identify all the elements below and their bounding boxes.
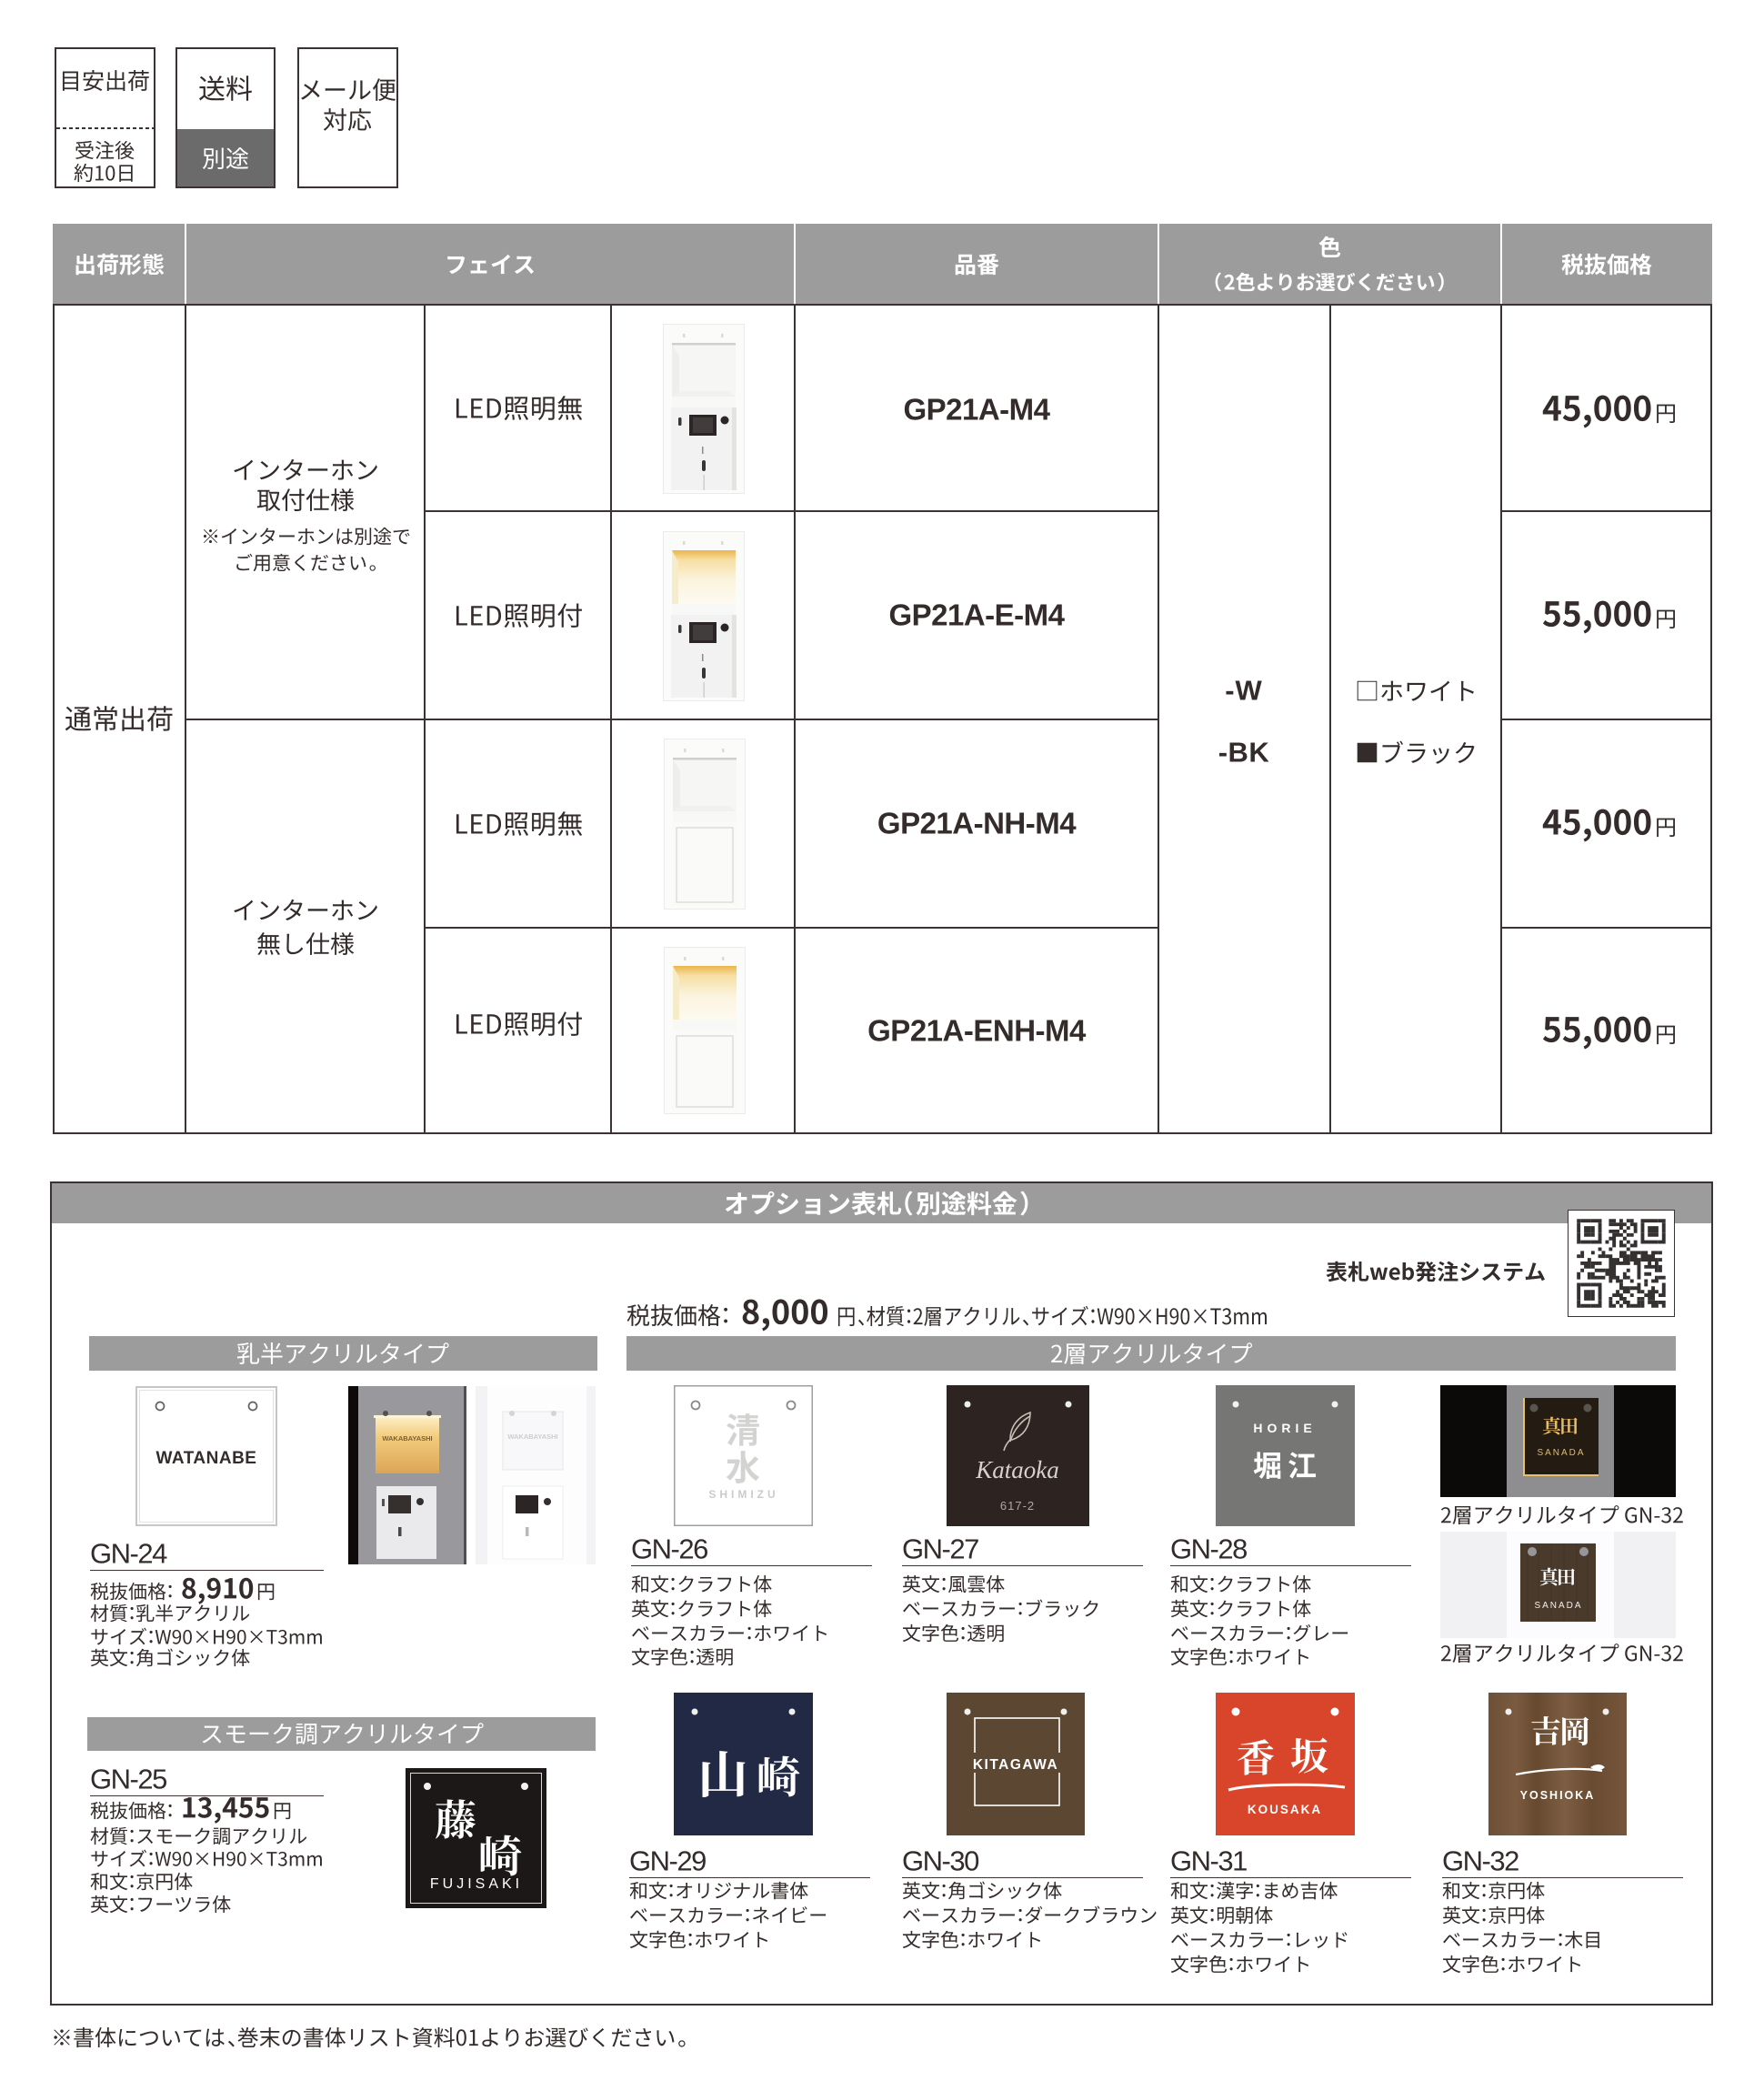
svg-text:Kataoka: Kataoka [975,1456,1059,1483]
svg-text:WAKABAYASHI: WAKABAYASHI [382,1434,432,1443]
svg-text:KITAGAWA: KITAGAWA [973,1757,1058,1773]
svg-text:KOUSAKA: KOUSAKA [1248,1803,1322,1816]
svg-text:617-2: 617-2 [1000,1499,1035,1513]
svg-text:YOSHIOKA: YOSHIOKA [1520,1789,1596,1802]
svg-text:WATANABE: WATANABE [156,1449,257,1468]
svg-text:WAKABAYASHI: WAKABAYASHI [507,1433,557,1441]
svg-text:HORIE: HORIE [1253,1421,1316,1435]
